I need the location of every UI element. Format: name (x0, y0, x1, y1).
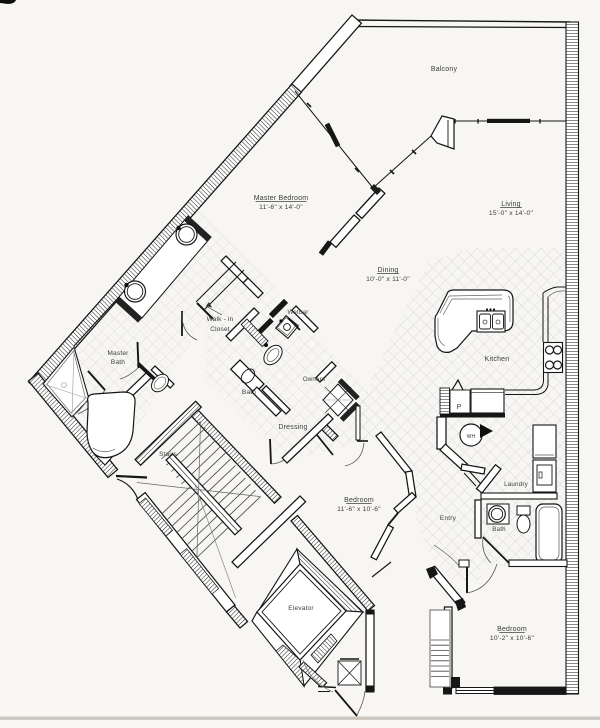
svg-text:Kitchen: Kitchen (485, 356, 510, 363)
svg-text:Balcony: Balcony (431, 66, 458, 73)
svg-text:10'-0" x 11'-0": 10'-0" x 11'-0" (366, 276, 410, 283)
svg-text:Bedroom: Bedroom (344, 497, 374, 504)
svg-text:Bedroom: Bedroom (497, 626, 527, 633)
svg-text:15'-0" x 14'-0": 15'-0" x 14'-0" (489, 210, 534, 217)
svg-text:Closet: Closet (210, 326, 230, 333)
svg-text:Bath: Bath (492, 526, 506, 533)
svg-text:Dressing: Dressing (278, 424, 307, 431)
svg-text:Entry: Entry (440, 515, 457, 522)
svg-text:Bath: Bath (111, 359, 125, 366)
svg-text:Living: Living (501, 201, 521, 208)
svg-text:Wetbar: Wetbar (287, 309, 308, 316)
svg-text:Master Bedroom: Master Bedroom (254, 195, 309, 202)
svg-text:10'-2" x 10'-6": 10'-2" x 10'-6" (490, 635, 535, 642)
svg-text:11'-6" x 14'-0": 11'-6" x 14'-0" (259, 204, 303, 211)
svg-text:Stairs: Stairs (159, 451, 177, 458)
svg-text:Walk - in: Walk - in (207, 316, 234, 323)
svg-text:Owners: Owners (303, 376, 326, 383)
svg-text:Laundry: Laundry (504, 481, 528, 488)
svg-text:Master: Master (107, 350, 129, 357)
svg-text:WH: WH (467, 434, 476, 440)
svg-text:11'-6" x 10'-6": 11'-6" x 10'-6" (337, 506, 381, 513)
svg-text:P: P (457, 404, 462, 411)
svg-text:Bath: Bath (242, 389, 256, 396)
svg-text:Dining: Dining (377, 267, 398, 274)
svg-text:Elevator: Elevator (288, 605, 314, 612)
